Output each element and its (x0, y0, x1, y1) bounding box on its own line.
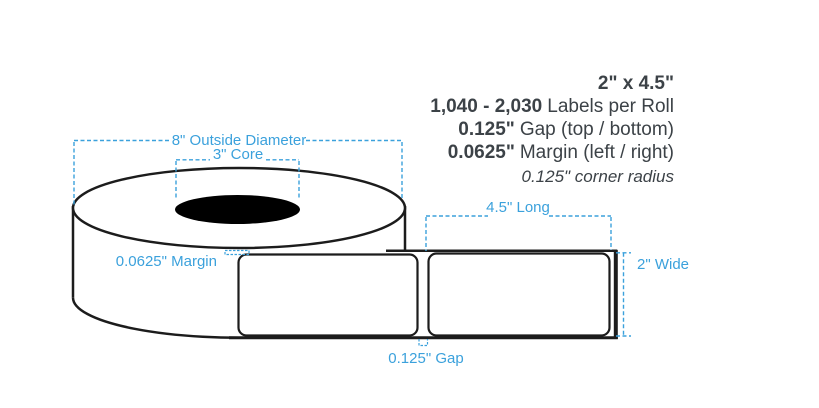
roll-core (175, 195, 300, 224)
spec-margin-label: Margin (left / right) (520, 142, 674, 163)
spec-corner-radius: 0.125" corner radius (430, 165, 674, 188)
spec-count-label: Labels per Roll (547, 96, 674, 117)
spec-count-value: 1,040 - 2,030 (430, 96, 542, 117)
spec-margin: 0.0625"Margin (left / right) (430, 141, 674, 164)
spec-gap: 0.125"Gap (top / bottom) (430, 118, 674, 141)
diagram-canvas (0, 0, 819, 408)
wide-label: 2" Wide (637, 257, 689, 273)
label-1 (239, 255, 418, 336)
spec-gap-value: 0.125" (458, 119, 515, 140)
spec-count: 1,040 - 2,030Labels per Roll (430, 95, 674, 118)
gap-label: 0.125" Gap (376, 351, 476, 367)
label-roll-spec-diagram: 8" Outside Diameter 3" Core 0.0625" Marg… (0, 0, 819, 408)
label-2 (429, 254, 610, 336)
core-label: 3" Core (188, 147, 288, 163)
long-label: 4.5" Long (468, 200, 568, 216)
spec-gap-label: Gap (top / bottom) (520, 119, 674, 140)
spec-size: 2" x 4.5" (430, 72, 674, 95)
spec-margin-value: 0.0625" (448, 142, 515, 163)
spec-block: 2" x 4.5" 1,040 - 2,030Labels per Roll 0… (430, 72, 674, 188)
margin-label: 0.0625" Margin (97, 254, 217, 270)
gap-dim-bracket (419, 339, 428, 346)
